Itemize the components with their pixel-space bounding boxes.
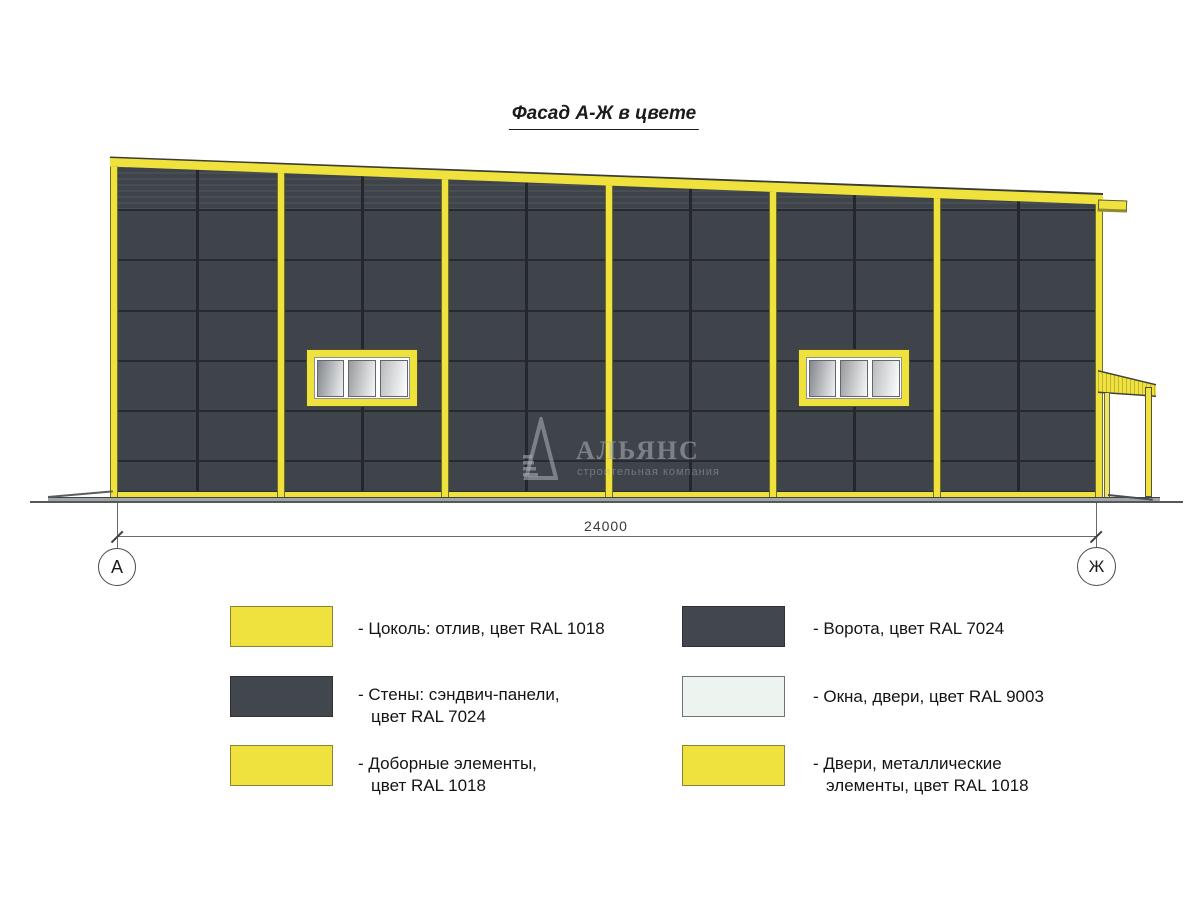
panel-joint-vertical: [196, 156, 199, 493]
dimension-line: [117, 536, 1097, 537]
window-glazing: [314, 357, 410, 399]
legend-line: - Цоколь: отлив, цвет RAL 1018: [358, 619, 605, 638]
legend-swatch-trim: [230, 745, 333, 786]
trim-column: [769, 156, 777, 497]
legend-line: цвет RAL 7024: [371, 706, 560, 728]
legend-swatch-gates: [682, 606, 785, 647]
drawing-title: Фасад А-Ж в цвете: [509, 103, 699, 130]
legend-line: - Двери, металлические: [813, 754, 1002, 773]
legend-label-walls: - Стены: сэндвич-панели, цвет RAL 7024: [358, 684, 560, 727]
legend-label-gates: - Ворота, цвет RAL 7024: [813, 618, 1004, 640]
legend-line: цвет RAL 1018: [371, 775, 537, 797]
facade-drawing-sheet: Фасад А-Ж в цвете: [0, 0, 1200, 900]
axis-marker-zh: Ж: [1077, 547, 1116, 586]
legend-label-trim: - Доборные элементы, цвет RAL 1018: [358, 753, 537, 796]
canopy-post-left: [1104, 393, 1110, 497]
legend-swatch-plinth: [230, 606, 333, 647]
window-glazing: [806, 357, 902, 399]
window-right: [798, 349, 910, 407]
watermark-logo: [522, 417, 558, 486]
trim-column: [933, 156, 941, 497]
panel-joint-vertical: [1017, 156, 1020, 493]
legend-line: - Ворота, цвет RAL 7024: [813, 619, 1004, 638]
window-pane: [380, 360, 408, 397]
legend-line: - Стены: сэндвич-панели,: [358, 685, 560, 704]
window-pane: [840, 360, 868, 397]
extension-line-right: [1096, 503, 1097, 548]
legend-swatch-windows: [682, 676, 785, 717]
legend-line: элементы, цвет RAL 1018: [826, 775, 1029, 797]
panel-joint-vertical: [853, 156, 856, 493]
window-pane: [348, 360, 376, 397]
watermark-company-name: АЛЬЯНС: [576, 436, 700, 466]
trim-column: [277, 156, 285, 497]
legend-label-plinth: - Цоколь: отлив, цвет RAL 1018: [358, 618, 605, 640]
extension-line-left: [117, 503, 118, 549]
fascia-overhang: [1098, 199, 1127, 212]
legend-line: - Доборные элементы,: [358, 754, 537, 773]
window-pane: [317, 360, 345, 397]
window-pane: [872, 360, 900, 397]
canopy-post-right: [1145, 387, 1152, 497]
legend-line: - Окна, двери, цвет RAL 9003: [813, 687, 1044, 706]
axis-letter: Ж: [1089, 557, 1105, 577]
window-pane: [809, 360, 837, 397]
ground-line: [30, 501, 1183, 503]
trim-column: [110, 156, 118, 497]
watermark-company-subtitle: строительная компания: [577, 466, 720, 478]
legend-label-windows: - Окна, двери, цвет RAL 9003: [813, 686, 1044, 708]
legend-label-doors: - Двери, металлические элементы, цвет RA…: [813, 753, 1029, 796]
axis-marker-a: А: [98, 548, 136, 586]
panel-joint-vertical: [361, 156, 364, 493]
axis-letter: А: [111, 557, 123, 578]
window-left: [306, 349, 418, 407]
legend-swatch-walls: [230, 676, 333, 717]
legend-swatch-doors: [682, 745, 785, 786]
dimension-label: 24000: [584, 518, 628, 534]
trim-column: [441, 156, 449, 497]
